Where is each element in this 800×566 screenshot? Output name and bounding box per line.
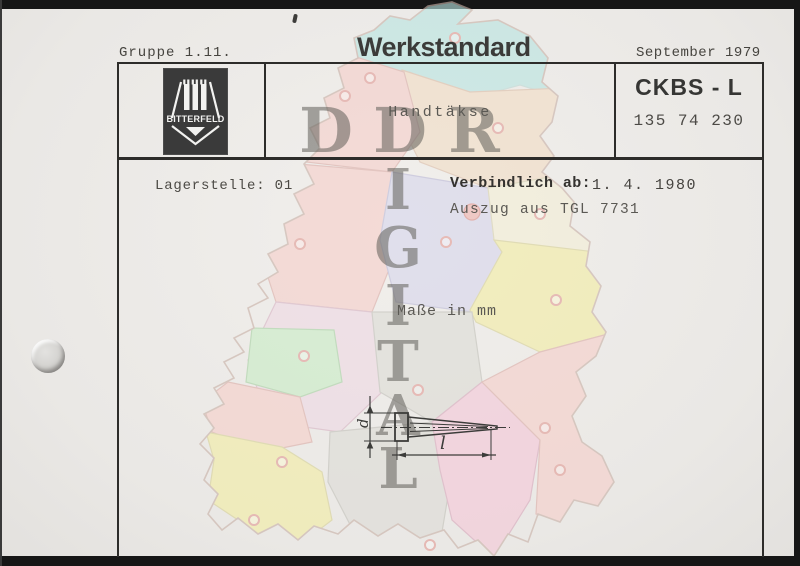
card-left-border — [117, 62, 119, 557]
scan-frame-right — [794, 0, 800, 566]
technical-drawing: d l — [348, 388, 518, 468]
source-excerpt-note: Auszug aus TGL 7731 — [450, 202, 640, 218]
valid-from-date: 1. 4. 1980 — [592, 177, 697, 194]
dim-arrow-l-right — [482, 453, 491, 458]
map-region-suhl — [206, 432, 332, 556]
dim-diameter-label: d — [354, 418, 372, 428]
dim-arrow-d-bottom — [367, 441, 374, 449]
dim-length-label: l — [440, 433, 446, 454]
units-note: Maße in mm — [397, 303, 497, 320]
bitterfeld-logo: BITTERFELD — [163, 68, 228, 155]
standard-code: CKBS - L — [616, 74, 762, 101]
scan-frame-left — [0, 0, 2, 566]
header-bottom-rule — [117, 157, 763, 160]
punch-hole — [31, 339, 65, 373]
watermark-letter-i1: I — [370, 162, 426, 218]
valid-from-label: Verbindlich ab: — [450, 175, 591, 192]
header-group-label: Gruppe 1.11. — [119, 45, 232, 61]
dim-arrow-l-left — [397, 453, 406, 458]
storage-location: Lagerstelle: 01 — [155, 178, 293, 194]
card-right-border — [762, 62, 764, 557]
watermark-letter-t: T — [370, 334, 426, 390]
watermark-letter-g: G — [370, 220, 426, 276]
document-type-title: Werkstandard — [357, 32, 531, 63]
factory-chimneys-icon — [163, 68, 228, 155]
item-number: 135 74 230 — [616, 112, 762, 130]
item-title: Handtäkse — [266, 104, 614, 121]
header-date: September 1979 — [636, 45, 761, 61]
scan-frame-bottom — [0, 556, 800, 566]
logo-label: BITTERFELD — [163, 114, 228, 124]
dim-arrow-d-top — [367, 405, 374, 413]
